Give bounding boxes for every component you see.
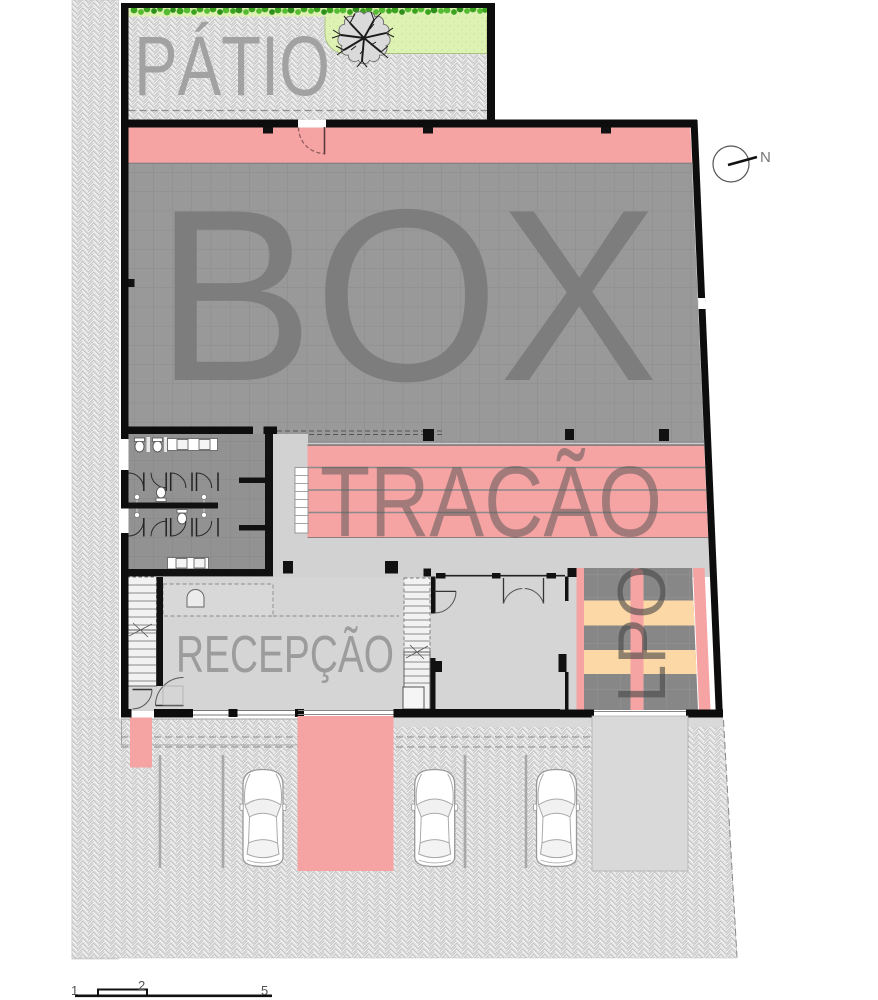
svg-text:5: 5 bbox=[261, 983, 268, 998]
svg-text:BOX: BOX bbox=[155, 158, 658, 432]
svg-text:N: N bbox=[760, 149, 771, 166]
svg-text:RECEPÇÃO: RECEPÇÃO bbox=[176, 626, 394, 684]
svg-text:1: 1 bbox=[71, 983, 78, 998]
svg-text:LPO: LPO bbox=[604, 565, 680, 703]
svg-text:2: 2 bbox=[138, 978, 145, 993]
svg-text:PÁTIO: PÁTIO bbox=[134, 19, 330, 113]
